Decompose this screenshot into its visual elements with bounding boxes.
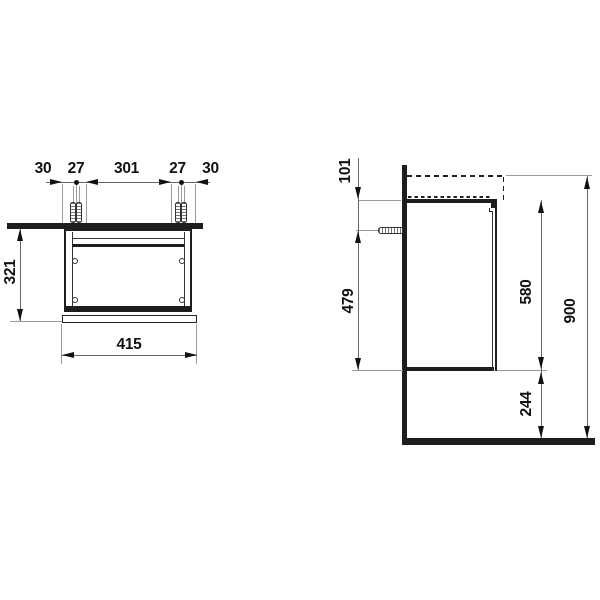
cabinet-front-outline bbox=[64, 229, 192, 312]
extension-line bbox=[195, 184, 196, 223]
wall-line bbox=[402, 165, 407, 439]
reference-line-cabinet-top bbox=[358, 200, 401, 201]
countertop-dashed-outline bbox=[407, 175, 504, 177]
dim-label-301: 301 bbox=[114, 161, 139, 177]
dim-label-27-left: 27 bbox=[68, 161, 85, 177]
extension-line bbox=[10, 321, 62, 322]
arrowhead-down bbox=[538, 426, 544, 438]
shelf-hole bbox=[179, 258, 185, 264]
dim-label-900: 900 bbox=[563, 299, 579, 324]
arrowhead-right bbox=[159, 179, 171, 185]
reference-line-cabinet-bottom-right bbox=[497, 370, 547, 371]
dim-label-30-left: 30 bbox=[35, 161, 52, 177]
arrowhead-up bbox=[538, 372, 544, 384]
floor-line bbox=[402, 438, 595, 445]
dimension-line-top-chain bbox=[46, 182, 210, 183]
dim-label-321: 321 bbox=[3, 260, 19, 285]
arrowhead-right bbox=[185, 352, 197, 358]
dim-label-415: 415 bbox=[117, 337, 142, 353]
cabinet-top-line bbox=[407, 199, 497, 203]
fixing-screw bbox=[181, 202, 187, 223]
arrowhead-down bbox=[538, 357, 544, 369]
dim-label-244: 244 bbox=[519, 391, 535, 416]
shelf-hole bbox=[72, 297, 78, 303]
screw-stem bbox=[79, 186, 80, 203]
screw-stem bbox=[178, 186, 179, 203]
arrowhead-down bbox=[355, 187, 361, 199]
door-back-line bbox=[492, 211, 493, 371]
screw-stem bbox=[184, 186, 185, 203]
cabinet-bottom-line bbox=[407, 367, 494, 371]
extension-line bbox=[61, 324, 62, 364]
dimension-dot bbox=[74, 180, 79, 185]
dim-label-30-right: 30 bbox=[202, 161, 219, 177]
shelf-hole bbox=[72, 258, 78, 264]
reference-line-countertop-top bbox=[506, 175, 592, 176]
arrowhead-down bbox=[355, 358, 361, 370]
dimension-dot bbox=[179, 180, 184, 185]
mounting-screw-side bbox=[378, 227, 403, 234]
screw-stem bbox=[73, 186, 74, 203]
arrowhead-up bbox=[538, 201, 544, 213]
top-rail-line bbox=[72, 244, 184, 247]
extension-line bbox=[86, 184, 87, 223]
bottom-panel-line bbox=[64, 306, 192, 312]
sealing-strip-dashes bbox=[408, 196, 491, 198]
extension-line bbox=[171, 184, 172, 223]
dim-label-479: 479 bbox=[341, 289, 357, 314]
arrowhead-up bbox=[17, 229, 23, 241]
arrowhead-right bbox=[50, 179, 62, 185]
bottom-slab bbox=[62, 315, 197, 323]
dimension-line-415 bbox=[62, 355, 197, 356]
dim-label-101: 101 bbox=[338, 158, 354, 183]
arrowhead-left bbox=[196, 179, 208, 185]
arrowhead-left bbox=[86, 179, 98, 185]
countertop-dashed-outline bbox=[503, 176, 505, 200]
arrowhead-up bbox=[584, 177, 590, 189]
arrowhead-up bbox=[355, 231, 361, 243]
extension-line bbox=[62, 184, 63, 223]
dim-label-27-right: 27 bbox=[169, 161, 186, 177]
top-rail-line bbox=[72, 238, 184, 239]
dim-label-580: 580 bbox=[519, 279, 535, 304]
dimension-line-900 bbox=[587, 176, 588, 438]
arrowhead-down bbox=[17, 309, 23, 321]
fixing-screw bbox=[76, 202, 82, 223]
arrowhead-down bbox=[584, 426, 590, 438]
technical-drawing-vanity-unit: 30 27 301 27 30 321 415 bbox=[0, 0, 600, 600]
arrowhead-left bbox=[62, 352, 74, 358]
door-front-line bbox=[495, 207, 497, 371]
extension-line bbox=[196, 324, 197, 364]
dimension-line-580-244 bbox=[541, 200, 542, 438]
dimension-line-321 bbox=[20, 229, 21, 321]
shelf-hole bbox=[179, 297, 185, 303]
